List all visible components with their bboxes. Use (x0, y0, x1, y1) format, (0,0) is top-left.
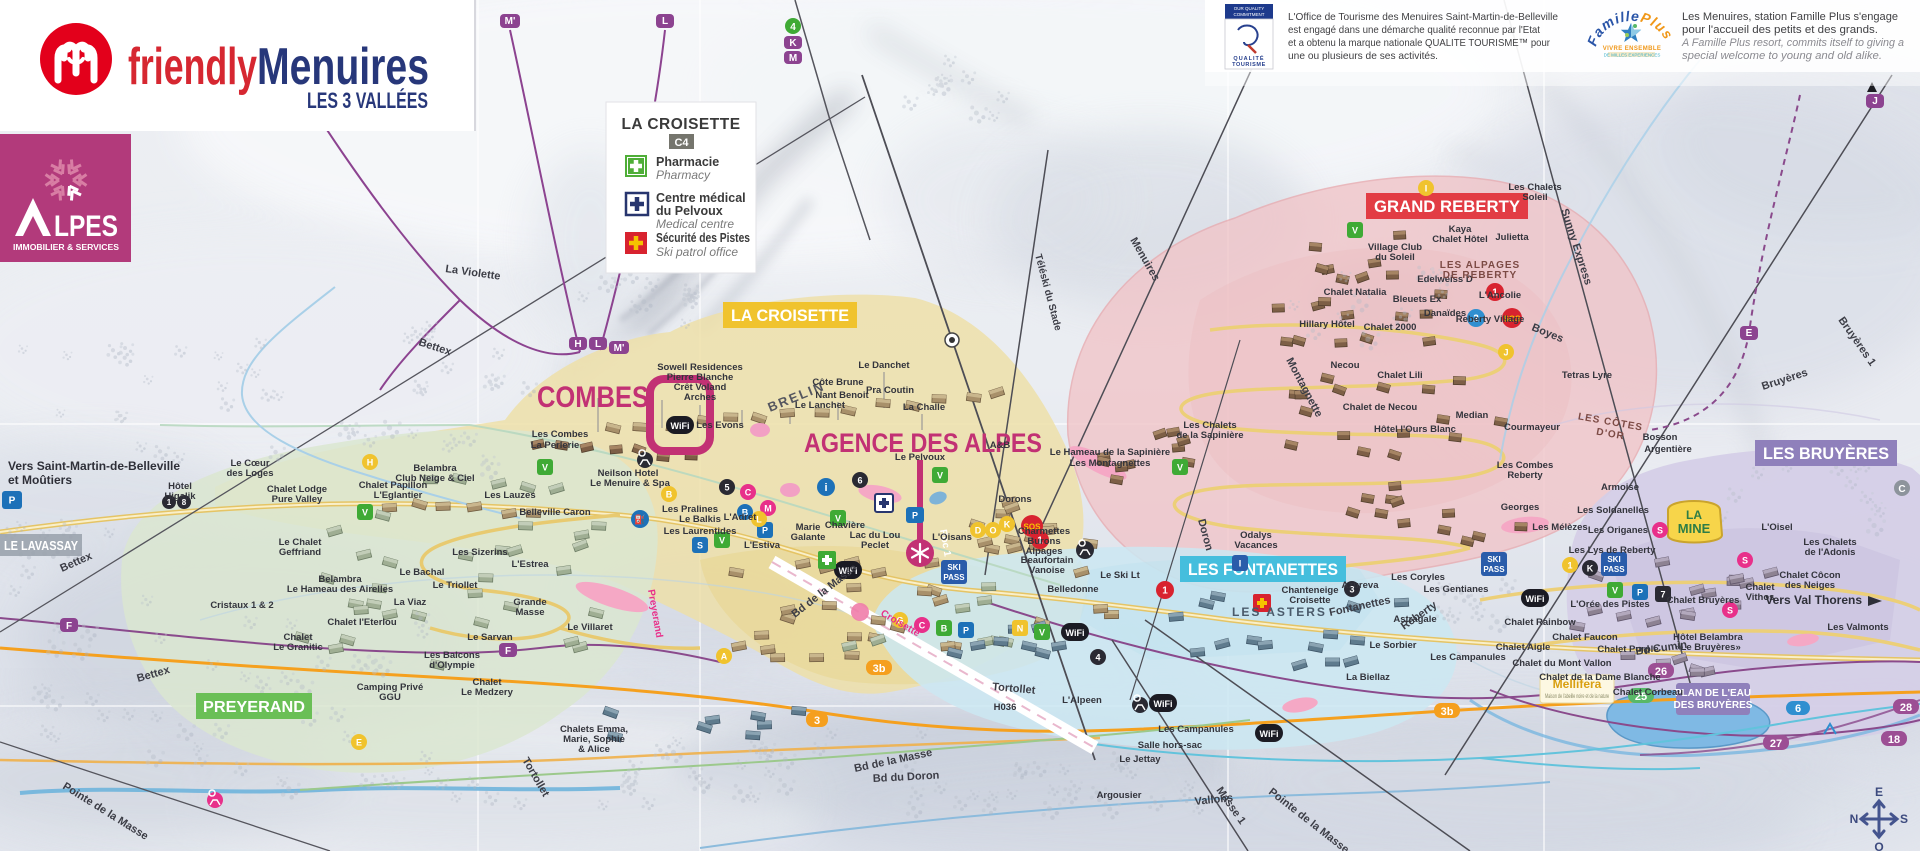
svg-text:L'Office de Tourisme des Menui: L'Office de Tourisme des Menuires Saint-… (1288, 11, 1558, 23)
svg-text:SKI: SKI (1487, 555, 1500, 564)
svg-text:V: V (362, 508, 368, 518)
svg-text:Alpages: Alpages (1026, 546, 1063, 557)
svg-text:PLAN DE L'EAU: PLAN DE L'EAU (1675, 688, 1751, 699)
svg-text:N: N (1850, 812, 1859, 826)
svg-text:SKI: SKI (1607, 555, 1620, 564)
svg-text:S: S (1742, 556, 1748, 566)
svg-text:A&B: A&B (990, 440, 1011, 451)
svg-text:Les Lys de Reberty: Les Lys de Reberty (1569, 545, 1656, 556)
svg-text:Les Evons: Les Evons (696, 420, 744, 431)
svg-text:V: V (1612, 586, 1618, 596)
svg-text:H036: H036 (994, 702, 1017, 713)
svg-text:Chalet l'Eterlou: Chalet l'Eterlou (327, 617, 396, 628)
svg-text:Geffriand: Geffriand (279, 547, 321, 558)
svg-text:I: I (1239, 559, 1242, 569)
svg-text:Bleuets Ex: Bleuets Ex (1393, 294, 1442, 305)
svg-text:Le Balkis: Le Balkis (679, 514, 721, 525)
svg-text:Le Ski Lt: Le Ski Lt (1100, 570, 1140, 581)
svg-text:M: M (789, 53, 797, 64)
svg-text:du Pelvoux: du Pelvoux (656, 204, 723, 218)
svg-text:K: K (1004, 520, 1011, 530)
svg-text:M': M' (614, 343, 625, 354)
svg-text:de la Sapinière: de la Sapinière (1176, 430, 1243, 441)
svg-text:PREYERAND: PREYERAND (203, 699, 305, 716)
svg-text:J: J (1872, 96, 1878, 107)
svg-text:L'Oisel: L'Oisel (1761, 522, 1792, 533)
svg-text:La Challe: La Challe (903, 402, 945, 413)
svg-text:Les Combes: Les Combes (532, 429, 589, 440)
svg-text:WiFi: WiFi (1154, 699, 1173, 709)
svg-text:Chalet de Necou: Chalet de Necou (1343, 402, 1418, 413)
svg-text:B: B (666, 490, 673, 500)
svg-text:Chalet Hôtel: Chalet Hôtel (1432, 234, 1487, 245)
svg-text:Les Gentianes: Les Gentianes (1424, 584, 1489, 595)
svg-text:Chalet Lili: Chalet Lili (1377, 370, 1422, 381)
svg-text:Les Soldanelles: Les Soldanelles (1577, 505, 1649, 516)
svg-text:Côte Brune: Côte Brune (812, 377, 863, 388)
svg-text:A: A (721, 652, 728, 662)
svg-text:DES BRUYÈRES: DES BRUYÈRES (1674, 698, 1753, 711)
svg-text:des Neiges: des Neiges (1785, 580, 1835, 591)
svg-text:QUALITÉ: QUALITÉ (1233, 54, 1264, 62)
svg-text:Les Lauzes: Les Lauzes (484, 490, 535, 501)
svg-text:Vacances: Vacances (1234, 540, 1277, 551)
svg-text:Soleil: Soleil (1522, 192, 1547, 203)
svg-text:F: F (66, 621, 72, 632)
svg-text:Les Menuires, station Famille: Les Menuires, station Famille Plus s'eng… (1682, 11, 1898, 23)
svg-text:Les Mélèzes: Les Mélèzes (1532, 522, 1587, 533)
svg-text:Hôtel l'Ours Blanc: Hôtel l'Ours Blanc (1374, 424, 1456, 435)
svg-text:Les Sizerins: Les Sizerins (452, 547, 507, 558)
svg-text:Pharmacie: Pharmacie (656, 155, 719, 169)
svg-text:1: 1 (1567, 561, 1572, 571)
svg-text:S: S (1727, 606, 1733, 616)
svg-text:Le Jettay: Le Jettay (1119, 754, 1161, 765)
svg-text:Les Montagnettes: Les Montagnettes (1070, 458, 1151, 469)
svg-text:S: S (1657, 526, 1663, 536)
svg-text:Le Hameau des Airelles: Le Hameau des Airelles (287, 584, 393, 595)
svg-text:pour l'accueil des petits et d: pour l'accueil des petits et des grands. (1682, 24, 1878, 36)
svg-text:4: 4 (1095, 653, 1100, 663)
svg-text:LES ASTERS: LES ASTERS (1232, 605, 1327, 619)
svg-text:Tetras Lyre: Tetras Lyre (1562, 370, 1612, 381)
svg-text:SKI: SKI (947, 563, 960, 572)
svg-text:Armoise: Armoise (1601, 482, 1639, 493)
svg-text:L'Eglantier: L'Eglantier (374, 490, 423, 501)
svg-text:P: P (9, 496, 16, 507)
svg-text:Chalet Natalia: Chalet Natalia (1324, 287, 1388, 298)
svg-text:WiFi: WiFi (1260, 729, 1279, 739)
svg-text:1: 1 (1162, 586, 1168, 597)
svg-text:C: C (745, 488, 752, 498)
svg-text:Ski patrol office: Ski patrol office (656, 245, 738, 259)
svg-text:est engagé dans une démarche q: est engagé dans une démarche qualité rec… (1288, 24, 1540, 36)
svg-text:Galante: Galante (791, 532, 826, 543)
svg-text:M: M (764, 504, 772, 514)
svg-text:Chalet Aigle: Chalet Aigle (1496, 642, 1551, 653)
svg-text:GRAND REBERTY: GRAND REBERTY (1374, 197, 1521, 216)
svg-text:Chalet de la Dame Blanche: Chalet de la Dame Blanche (1539, 672, 1660, 683)
svg-text:Argousier: Argousier (1097, 790, 1142, 801)
svg-text:L'Estiva: L'Estiva (744, 540, 781, 551)
svg-text:LA CROISETTE: LA CROISETTE (621, 116, 740, 133)
svg-text:WiFi: WiFi (1066, 628, 1085, 638)
svg-text:Centre médical: Centre médical (656, 191, 746, 205)
svg-text:C4: C4 (674, 137, 689, 149)
svg-text:Le Hameau de la Sapinière: Le Hameau de la Sapinière (1050, 447, 1170, 458)
svg-text:une ou plusieurs de ses activi: une ou plusieurs de ses activités. (1288, 50, 1438, 62)
svg-text:LA CROISETTE: LA CROISETTE (731, 306, 849, 325)
svg-text:Courmayeur: Courmayeur (1504, 422, 1560, 433)
svg-text:Reberty Village: Reberty Village (1456, 314, 1524, 325)
svg-text:M': M' (505, 16, 516, 27)
svg-text:Pharmacy: Pharmacy (656, 168, 711, 182)
svg-text:Vers Saint-Martin-de-Bellevill: Vers Saint-Martin-de-Belleville (8, 459, 180, 473)
svg-text:P: P (1637, 588, 1643, 598)
svg-text:Pure Valley: Pure Valley (272, 494, 323, 505)
svg-text:Les Coryles: Les Coryles (1391, 572, 1445, 583)
svg-text:L'Oisans: L'Oisans (932, 532, 972, 543)
svg-text:V: V (1177, 463, 1183, 473)
svg-text:S: S (697, 541, 703, 551)
svg-text:I: I (1425, 184, 1428, 194)
svg-text:L: L (662, 16, 668, 27)
svg-text:LPES: LPES (54, 210, 118, 243)
svg-text:Hillary Hôtel: Hillary Hôtel (1299, 319, 1354, 330)
svg-text:L'Ancolie: L'Ancolie (1479, 290, 1521, 301)
svg-text:N: N (1017, 624, 1024, 634)
svg-text:i: i (824, 482, 827, 494)
svg-text:TOURISME: TOURISME (1232, 62, 1266, 68)
svg-text:P: P (912, 511, 918, 521)
svg-text:OUR QUALITY: OUR QUALITY (1234, 6, 1265, 11)
svg-text:de l'Adonis: de l'Adonis (1805, 547, 1856, 558)
svg-text:Bosson: Bosson (1643, 432, 1678, 443)
svg-text:Salle hors-sac: Salle hors-sac (1138, 740, 1202, 751)
svg-text:A Famille Plus resort, commits: A Famille Plus resort, commits itself to… (1681, 37, 1904, 49)
svg-text:Le Medzery: Le Medzery (461, 687, 513, 698)
svg-text:E: E (1875, 785, 1883, 799)
svg-text:Chalet du Mont Vallon: Chalet du Mont Vallon (1512, 658, 1611, 669)
svg-text:Le Lanchet: Le Lanchet (795, 400, 846, 411)
svg-text:LES FONTANETTES: LES FONTANETTES (1188, 560, 1338, 579)
svg-text:d'Olympie: d'Olympie (429, 660, 475, 671)
svg-text:Le Sarvan: Le Sarvan (467, 632, 513, 643)
svg-text:DE MILLES EXPERIENCES: DE MILLES EXPERIENCES (1604, 53, 1661, 58)
svg-text:P: P (963, 626, 969, 636)
svg-text:28: 28 (1900, 702, 1912, 714)
svg-text:Les Origanes: Les Origanes (1588, 525, 1648, 536)
svg-text:Le Sorbier: Le Sorbier (1370, 640, 1417, 651)
svg-text:Argentière: Argentière (1644, 444, 1692, 455)
svg-text:LE LAVASSAY: LE LAVASSAY (4, 538, 78, 553)
svg-text:Arches: Arches (684, 392, 716, 403)
svg-text:Pra Coutin: Pra Coutin (866, 385, 914, 396)
svg-text:5: 5 (724, 483, 729, 493)
svg-text:des Loges: des Loges (227, 468, 274, 479)
svg-text:Belleville Caron: Belleville Caron (519, 507, 590, 518)
svg-text:Le Bachal: Le Bachal (400, 567, 445, 578)
svg-text:et a obtenu la marque national: et a obtenu la marque nationale QUALITE … (1288, 37, 1550, 49)
svg-text:J: J (1503, 348, 1508, 358)
svg-text:Le Triollet: Le Triollet (433, 580, 479, 591)
svg-text:C: C (1898, 484, 1905, 495)
svg-text:friendly: friendly (128, 38, 257, 96)
svg-text:Peclet: Peclet (861, 540, 890, 551)
svg-text:COMMITMENT: COMMITMENT (1234, 12, 1265, 17)
svg-text:Les Laurentides: Les Laurentides (664, 526, 737, 537)
svg-text:IMMOBILIER & SERVICES: IMMOBILIER & SERVICES (13, 243, 120, 252)
svg-text:du Soleil: du Soleil (1375, 252, 1415, 263)
svg-text:6: 6 (857, 476, 862, 486)
svg-text:Le Menuire & Spa: Le Menuire & Spa (590, 478, 670, 489)
svg-text:Le Granitic: Le Granitic (273, 642, 323, 653)
svg-text:Les Campanules: Les Campanules (1158, 724, 1234, 735)
svg-text:Maison de l'abeille noire et d: Maison de l'abeille noire et de la natur… (1545, 694, 1609, 700)
svg-text:Le Pelvoux: Le Pelvoux (895, 452, 946, 463)
svg-text:Chalet Rainbow: Chalet Rainbow (1504, 617, 1576, 628)
svg-text:Belledonne: Belledonne (1047, 584, 1098, 595)
svg-text:K: K (789, 38, 797, 49)
svg-text:Le Danchet: Le Danchet (858, 360, 910, 371)
svg-text:Higalik: Higalik (164, 491, 196, 502)
svg-text:La Viaz: La Viaz (394, 597, 427, 608)
svg-text:4: 4 (790, 22, 796, 33)
svg-text:GGU: GGU (379, 692, 401, 703)
svg-text:Chavière: Chavière (825, 520, 865, 531)
svg-text:WiFi: WiFi (671, 421, 690, 431)
svg-text:27: 27 (1770, 738, 1782, 750)
svg-text:Reberty: Reberty (1507, 470, 1543, 481)
svg-text:V: V (719, 536, 725, 546)
svg-text:V: V (1352, 226, 1358, 236)
svg-text:B: B (941, 624, 948, 634)
svg-text:MINE: MINE (1678, 521, 1711, 536)
svg-text:LA: LA (1686, 508, 1702, 522)
svg-text:VIVRE ENSEMBLE: VIVRE ENSEMBLE (1603, 46, 1662, 52)
svg-text:D: D (975, 526, 982, 536)
svg-text:3b: 3b (873, 663, 886, 675)
svg-text:H: H (574, 339, 581, 350)
svg-text:E: E (1746, 328, 1753, 339)
svg-text:PASS: PASS (1603, 565, 1625, 574)
svg-text:special welcome to young and o: special welcome to young and old alike. (1682, 50, 1882, 62)
svg-text:PASS: PASS (1483, 565, 1505, 574)
svg-text:Chalet Purple: Chalet Purple (1597, 644, 1658, 655)
svg-text:L'Adret: L'Adret (724, 512, 758, 523)
svg-text:Medical centre: Medical centre (656, 217, 734, 231)
svg-text:V: V (937, 471, 943, 481)
svg-text:H: H (367, 458, 374, 468)
svg-text:7: 7 (1660, 590, 1665, 600)
svg-text:Median: Median (1456, 410, 1489, 421)
svg-text:Les Campanules: Les Campanules (1430, 652, 1506, 663)
svg-text:Vers Val Thorens: Vers Val Thorens (1765, 593, 1862, 607)
svg-text:6: 6 (1795, 703, 1801, 715)
svg-text:P: P (762, 526, 768, 536)
svg-text:DE REBERTY: DE REBERTY (1443, 270, 1517, 281)
svg-text:PASS: PASS (943, 573, 965, 582)
svg-text:Chalet Corbeau: Chalet Corbeau (1613, 687, 1683, 698)
svg-text:L'Alpeen: L'Alpeen (1062, 695, 1102, 706)
svg-text:LES BRUYÈRES: LES BRUYÈRES (1763, 444, 1889, 463)
svg-text:& Alice: & Alice (578, 744, 610, 755)
svg-text:E: E (356, 738, 362, 748)
svg-text:3b: 3b (1441, 706, 1454, 718)
svg-text:Chalet Faucon: Chalet Faucon (1552, 632, 1618, 643)
svg-text:V: V (1039, 628, 1045, 638)
svg-text:Cristaux 1 & 2: Cristaux 1 & 2 (210, 600, 273, 611)
svg-text:Astragale: Astragale (1393, 614, 1436, 625)
svg-text:K: K (1587, 564, 1594, 574)
svg-text:Vanoise: Vanoise (1029, 565, 1065, 576)
svg-text:Les Valmonts: Les Valmonts (1827, 622, 1888, 633)
svg-text:Dorons: Dorons (998, 494, 1031, 505)
svg-text:Le Villaret: Le Villaret (567, 622, 613, 633)
svg-text:LES 3 VALLÉES: LES 3 VALLÉES (307, 88, 428, 113)
svg-text:V: V (542, 463, 548, 473)
svg-text:S: S (1900, 812, 1908, 826)
svg-text:Necou: Necou (1330, 360, 1359, 371)
svg-text:18: 18 (1888, 734, 1900, 746)
svg-text:L: L (595, 339, 601, 350)
svg-text:et Moûtiers: et Moûtiers (8, 473, 72, 487)
svg-text:L'Orée des Pistes: L'Orée des Pistes (1570, 599, 1649, 610)
svg-text:Chalet 2000: Chalet 2000 (1364, 322, 1417, 333)
svg-text:L: L (756, 515, 762, 525)
svg-text:WiFi: WiFi (1526, 594, 1545, 604)
svg-text:F: F (505, 646, 511, 657)
svg-text:Chalet Bruyères: Chalet Bruyères (1667, 595, 1740, 606)
svg-text:La Perlerie: La Perlerie (531, 440, 580, 451)
svg-text:O: O (1874, 840, 1883, 851)
svg-text:Azureva: Azureva (1342, 580, 1380, 591)
svg-text:Georges: Georges (1501, 502, 1540, 513)
svg-text:La Biellaz: La Biellaz (1346, 672, 1390, 683)
svg-text:Sécurité des Pistes: Sécurité des Pistes (656, 231, 750, 245)
svg-text:COMBES: COMBES (537, 381, 649, 414)
svg-text:O: O (989, 526, 996, 536)
svg-text:Julietta: Julietta (1495, 232, 1529, 243)
svg-text:L'Estrea: L'Estrea (511, 559, 549, 570)
svg-text:Masse: Masse (515, 607, 544, 618)
svg-text:«Le Bruyères»: «Le Bruyères» (1675, 642, 1740, 653)
svg-text:⛽: ⛽ (634, 514, 645, 525)
svg-text:3: 3 (814, 715, 820, 727)
